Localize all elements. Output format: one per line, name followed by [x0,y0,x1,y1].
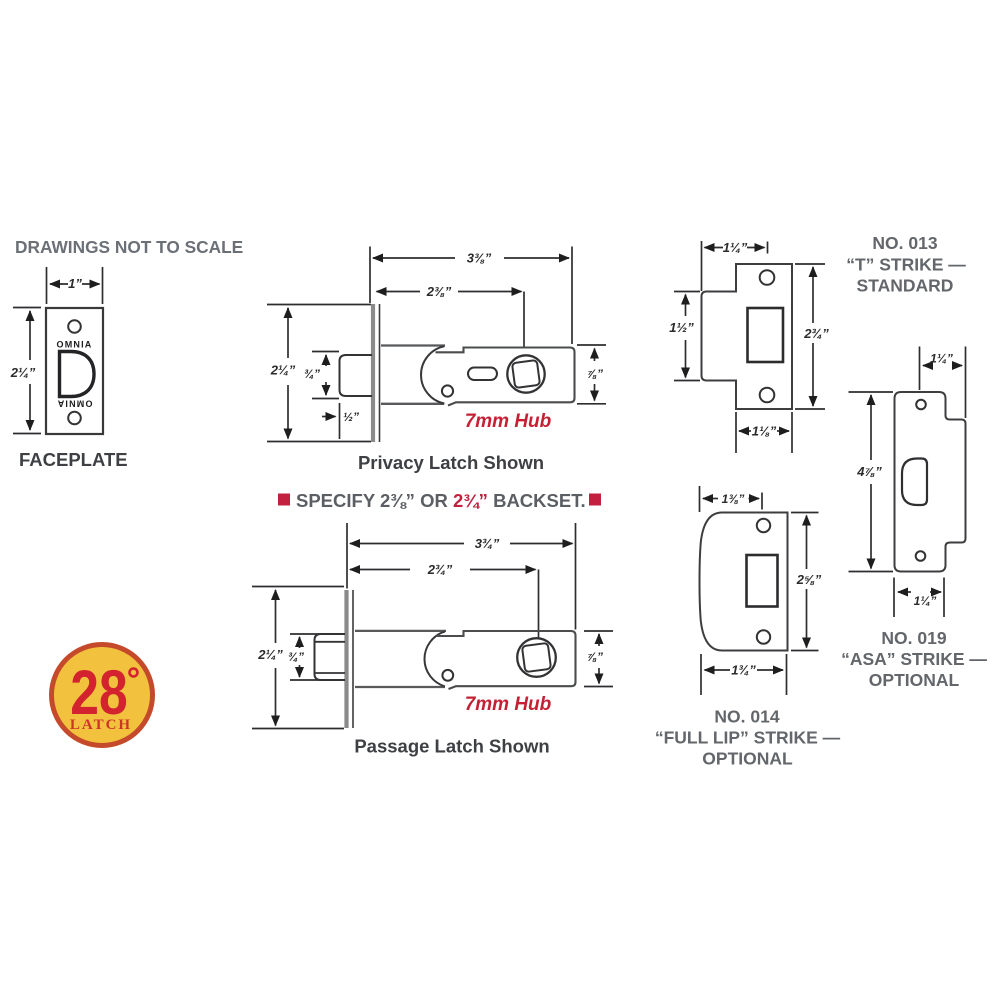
svg-text:NO. 014: NO. 014 [714,707,779,727]
svg-text:4⅞”: 4⅞” [856,464,882,479]
svg-text:NO. 013: NO. 013 [872,233,937,253]
svg-text:1¼”: 1¼” [723,240,748,255]
svg-text:3⅜”: 3⅜” [467,251,492,266]
svg-text:OMNIA: OMNIA [57,399,93,409]
svg-text:1”: 1” [68,276,82,291]
svg-text:½”: ½” [343,410,359,424]
svg-text:Passage Latch Shown: Passage Latch Shown [354,736,549,757]
svg-text:DRAWINGS NOT TO SCALE: DRAWINGS NOT TO SCALE [15,237,243,257]
svg-text:2¾”: 2¾” [803,326,829,341]
svg-text:2¼”: 2¼” [10,365,36,380]
svg-text:OPTIONAL: OPTIONAL [869,670,960,690]
svg-text:1⅜”: 1⅜” [722,492,745,506]
svg-text:“ASA” STRIKE —: “ASA” STRIKE — [841,649,987,669]
svg-text:2¼”: 2¼” [257,647,283,662]
svg-text:2¼”: 2¼” [270,363,296,378]
svg-text:NO. 019: NO. 019 [881,628,946,648]
svg-text:2⅜”: 2⅜” [426,284,452,299]
svg-text:⅞”: ⅞” [587,650,603,664]
svg-text:OPTIONAL: OPTIONAL [702,749,793,769]
svg-text:1¾”: 1¾” [731,663,756,678]
svg-text:2⅝”: 2⅝” [796,572,822,587]
svg-text:¾”: ¾” [304,367,320,381]
svg-text:Privacy Latch Shown: Privacy Latch Shown [358,452,544,473]
svg-text:STANDARD: STANDARD [857,276,954,296]
svg-text:⅞”: ⅞” [587,367,603,381]
svg-text:LATCH: LATCH [70,717,132,733]
svg-text:7mm Hub: 7mm Hub [465,694,552,715]
svg-text:7mm Hub: 7mm Hub [465,411,552,432]
svg-text:1½”: 1½” [669,320,694,335]
svg-text:1¼”: 1¼” [930,352,953,366]
svg-text:SPECIFY 2⅜” OR 2¾” BACKSET.: SPECIFY 2⅜” OR 2¾” BACKSET. [296,490,586,511]
svg-text:“T” STRIKE —: “T” STRIKE — [846,255,966,275]
svg-text:OMNIA: OMNIA [57,340,93,350]
svg-text:2¾”: 2¾” [427,562,453,577]
svg-text:“FULL LIP” STRIKE —: “FULL LIP” STRIKE — [655,728,841,748]
svg-text:3¾”: 3¾” [475,536,500,551]
svg-text:1¼”: 1¼” [914,594,937,608]
svg-text:¾”: ¾” [288,650,304,664]
svg-text:FACEPLATE: FACEPLATE [19,449,128,470]
svg-text:1⅛”: 1⅛” [752,424,777,439]
